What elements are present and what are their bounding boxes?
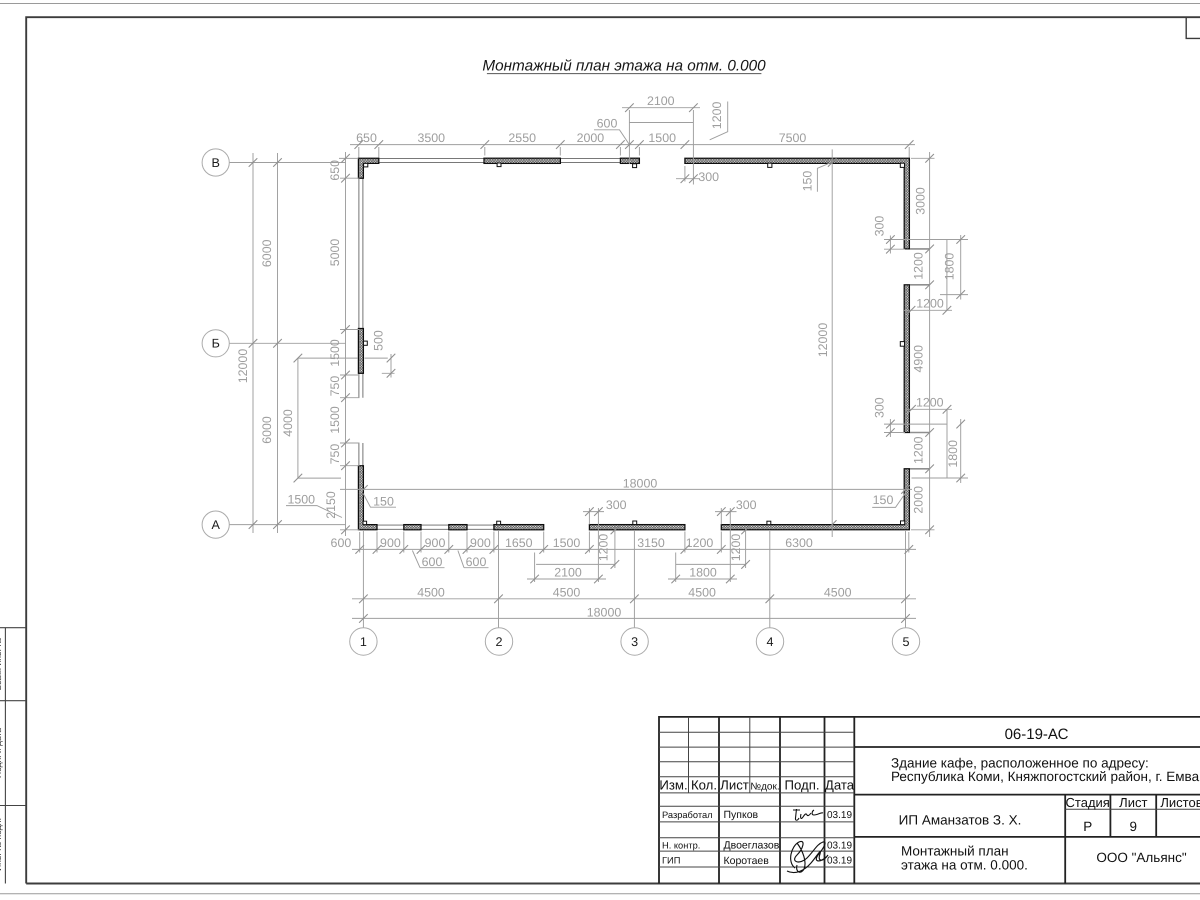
svg-text:03.19: 03.19: [827, 840, 852, 851]
svg-text:1500: 1500: [328, 406, 342, 434]
svg-text:1500: 1500: [328, 339, 342, 367]
svg-text:1800: 1800: [943, 253, 957, 281]
svg-text:1500: 1500: [288, 492, 316, 506]
svg-text:650: 650: [328, 160, 342, 181]
svg-text:3500: 3500: [418, 131, 446, 145]
svg-text:600: 600: [466, 555, 487, 569]
svg-text:Б: Б: [212, 337, 220, 351]
svg-text:300: 300: [872, 216, 886, 237]
svg-text:06-19-АС: 06-19-АС: [1005, 726, 1069, 743]
svg-text:4900: 4900: [912, 345, 926, 373]
svg-text:А: А: [211, 518, 220, 532]
svg-text:1200: 1200: [686, 536, 714, 550]
svg-text:этажа на отм. 0.000.: этажа на отм. 0.000.: [901, 857, 1028, 872]
svg-text:750: 750: [328, 444, 342, 465]
svg-text:1800: 1800: [946, 440, 960, 468]
svg-text:Изм.: Изм.: [659, 778, 687, 793]
svg-text:600: 600: [331, 536, 352, 550]
svg-text:300: 300: [698, 170, 719, 184]
svg-text:2000: 2000: [911, 486, 925, 514]
svg-text:3150: 3150: [637, 536, 665, 550]
svg-text:В: В: [211, 156, 219, 170]
svg-text:1200: 1200: [916, 296, 944, 310]
svg-text:500: 500: [372, 330, 386, 351]
svg-text:6000: 6000: [260, 416, 274, 444]
svg-text:300: 300: [606, 498, 627, 512]
svg-text:Коротаев: Коротаев: [724, 855, 770, 867]
svg-text:03.19: 03.19: [827, 856, 852, 867]
svg-text:Подп.: Подп.: [784, 778, 819, 793]
svg-text:4500: 4500: [553, 585, 581, 599]
svg-text:150: 150: [873, 493, 894, 507]
svg-text:5000: 5000: [328, 239, 342, 267]
svg-text:№док.: №док.: [750, 782, 779, 793]
svg-text:650: 650: [356, 131, 377, 145]
svg-text:2550: 2550: [508, 131, 536, 145]
svg-text:ИП Аманзатов З. Х.: ИП Аманзатов З. Х.: [899, 813, 1022, 828]
svg-text:Стадия: Стадия: [1066, 795, 1110, 810]
svg-text:300: 300: [736, 498, 757, 512]
svg-text:1500: 1500: [648, 131, 676, 145]
svg-text:1200: 1200: [729, 534, 743, 562]
svg-text:150: 150: [800, 171, 814, 192]
svg-text:300: 300: [872, 397, 886, 418]
svg-text:Монтажный план этажа на отм. 0: Монтажный план этажа на отм. 0.000: [482, 58, 766, 75]
svg-text:Республика Коми, Княжпогостски: Республика Коми, Княжпогостский район, г…: [891, 769, 1200, 784]
svg-text:03.19: 03.19: [827, 810, 852, 821]
svg-text:900: 900: [425, 536, 446, 550]
svg-text:1200: 1200: [710, 102, 724, 130]
svg-text:4500: 4500: [824, 585, 852, 599]
svg-text:9: 9: [1130, 819, 1138, 834]
svg-text:2: 2: [495, 635, 502, 649]
svg-text:Разработал: Разработал: [662, 810, 713, 820]
svg-text:18000: 18000: [587, 605, 622, 619]
svg-text:7500: 7500: [779, 131, 807, 145]
svg-text:Подп. и дата: Подп. и дата: [0, 728, 3, 778]
svg-text:5: 5: [902, 635, 909, 649]
svg-text:2000: 2000: [577, 131, 605, 145]
svg-text:Инв. № подл.: Инв. № подл.: [0, 818, 3, 871]
svg-text:Н. контр.: Н. контр.: [662, 841, 700, 851]
svg-text:4000: 4000: [281, 409, 295, 437]
svg-text:900: 900: [470, 536, 491, 550]
svg-text:Кол.: Кол.: [691, 778, 717, 793]
svg-text:3: 3: [631, 635, 638, 649]
svg-text:Монтажный план: Монтажный план: [901, 843, 1009, 858]
svg-text:Пупков: Пупков: [724, 809, 759, 821]
svg-text:18000: 18000: [623, 476, 658, 490]
svg-text:600: 600: [597, 116, 618, 130]
svg-text:1200: 1200: [597, 534, 611, 562]
svg-text:2100: 2100: [554, 565, 582, 579]
svg-text:6000: 6000: [260, 239, 274, 267]
svg-text:1650: 1650: [505, 536, 533, 550]
svg-text:2100: 2100: [647, 94, 675, 108]
svg-text:Лист: Лист: [720, 778, 749, 793]
svg-text:1200: 1200: [912, 252, 926, 280]
svg-text:Лист: Лист: [1119, 795, 1147, 810]
svg-text:3000: 3000: [914, 187, 928, 215]
svg-text:Взам. инв. №: Взам. инв. №: [0, 638, 3, 691]
svg-text:600: 600: [422, 555, 443, 569]
svg-text:1200: 1200: [916, 395, 944, 409]
svg-text:ГИП: ГИП: [662, 856, 680, 866]
svg-text:ООО "Альянс": ООО "Альянс": [1096, 850, 1186, 865]
svg-text:150: 150: [373, 494, 394, 508]
svg-text:2150: 2150: [324, 491, 338, 519]
svg-text:12000: 12000: [236, 349, 250, 384]
svg-text:4500: 4500: [417, 585, 445, 599]
svg-text:12000: 12000: [816, 323, 830, 358]
svg-text:750: 750: [328, 376, 342, 397]
svg-text:Р: Р: [1083, 819, 1092, 834]
svg-text:6300: 6300: [785, 536, 813, 550]
svg-text:4: 4: [766, 635, 773, 649]
svg-text:1200: 1200: [912, 436, 926, 464]
svg-text:Дата: Дата: [825, 778, 855, 793]
svg-text:1800: 1800: [689, 565, 717, 579]
svg-text:Двоеглазов: Двоеглазов: [724, 840, 780, 852]
svg-text:900: 900: [380, 536, 401, 550]
svg-text:1: 1: [360, 635, 367, 649]
svg-text:Листов: Листов: [1160, 795, 1200, 810]
svg-text:4500: 4500: [688, 585, 716, 599]
svg-text:1500: 1500: [553, 536, 581, 550]
